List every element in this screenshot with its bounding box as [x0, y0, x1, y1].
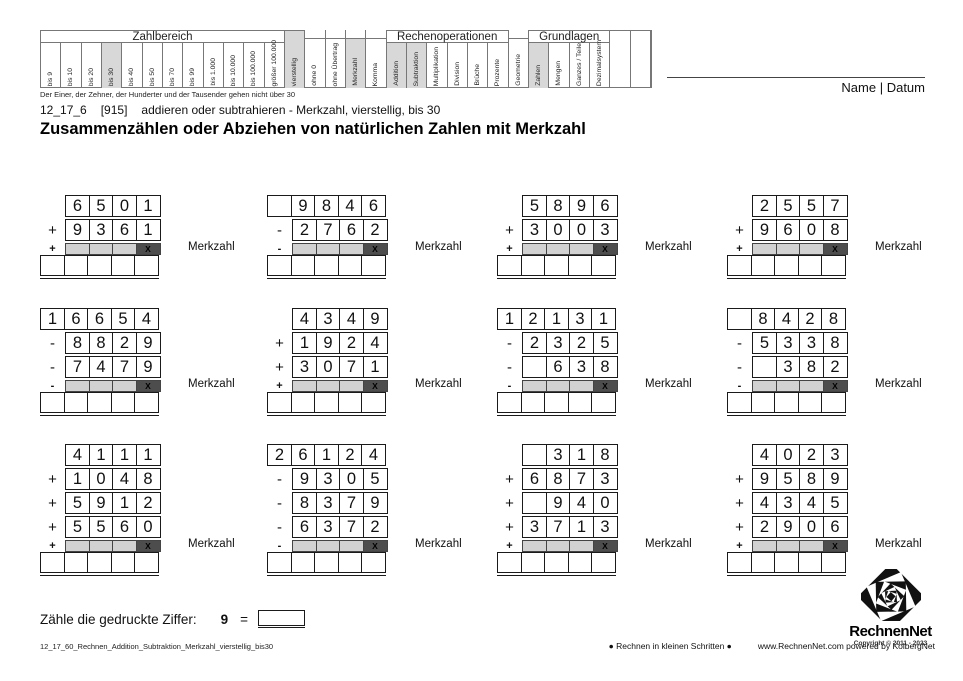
digit-cell: 5 — [65, 516, 90, 538]
digit-cell: 6 — [112, 516, 137, 538]
result-underline — [267, 575, 386, 576]
rechnennet-logo-icon — [861, 569, 921, 621]
digit-cell: 3 — [568, 308, 593, 330]
problems-grid: 6501+9361+XMerkzahl9846-2762-XMerkzahl58… — [0, 0, 963, 681]
operand-row: +9589 — [727, 468, 848, 490]
answer-row — [40, 392, 161, 413]
merkzahl-label: Merkzahl — [875, 538, 922, 550]
digit-cell: 6 — [292, 516, 317, 538]
operand-row: -382 — [727, 356, 848, 378]
merkzahl-operator-sign: - — [727, 380, 752, 392]
answer-cell[interactable] — [291, 255, 316, 276]
answer-cell[interactable] — [751, 255, 776, 276]
digit-cell: 3 — [593, 219, 618, 241]
answer-cell[interactable] — [497, 552, 522, 573]
count-answer-wrap — [258, 610, 305, 628]
operator-sign: + — [727, 516, 752, 538]
operator-sign: - — [267, 468, 292, 490]
operator-sign: + — [497, 492, 522, 514]
operand-row: 16654 — [40, 308, 161, 330]
merkzahl-x-cell: X — [136, 380, 161, 392]
merkzahl-cell[interactable] — [569, 540, 594, 552]
answer-cell[interactable] — [87, 552, 112, 573]
merkzahl-cell[interactable] — [112, 380, 137, 392]
merkzahl-operator-sign: + — [497, 243, 522, 255]
merkzahl-operator-sign: - — [267, 540, 292, 552]
digit-cell: 5 — [111, 308, 136, 330]
merkzahl-cell[interactable] — [569, 243, 594, 255]
digit-cell: 1 — [497, 308, 522, 330]
answer-cell[interactable] — [821, 255, 846, 276]
digit-cell: 4 — [752, 444, 777, 466]
operand-row: -638 — [497, 356, 618, 378]
digit-cell: 8 — [593, 444, 618, 466]
answer-cell[interactable] — [40, 255, 65, 276]
answer-cell[interactable] — [544, 255, 569, 276]
count-task-text: Zähle die gedruckte Ziffer: — [40, 612, 197, 627]
operand-row: -6372 — [267, 516, 388, 538]
digit-cell: 6 — [776, 219, 801, 241]
merkzahl-cell[interactable] — [776, 380, 801, 392]
digit-cell: 6 — [112, 219, 137, 241]
result-underline — [497, 575, 616, 576]
digit-cell: 9 — [363, 308, 388, 330]
digit-cell: 9 — [65, 219, 90, 241]
answer-cell[interactable] — [291, 392, 316, 413]
operand-row: 9846 — [267, 195, 388, 217]
answer-cell[interactable] — [111, 552, 136, 573]
answer-cell[interactable] — [751, 392, 776, 413]
digit-cell: 8 — [65, 332, 90, 354]
merkzahl-cell[interactable] — [546, 380, 571, 392]
answer-cell[interactable] — [291, 552, 316, 573]
merkzahl-cell[interactable] — [112, 243, 137, 255]
digit-cell: 2 — [363, 516, 388, 538]
answer-cell[interactable] — [134, 255, 159, 276]
empty-digit-cell — [267, 195, 292, 217]
merkzahl-x-label: X — [145, 244, 151, 254]
digit-cell: 1 — [363, 356, 388, 378]
empty-digit-cell — [522, 492, 547, 514]
merkzahl-cell[interactable] — [522, 380, 547, 392]
merkzahl-cell[interactable] — [292, 540, 317, 552]
operator-sign — [727, 195, 752, 217]
answer-cell[interactable] — [798, 255, 823, 276]
merkzahl-label: Merkzahl — [875, 378, 922, 390]
answer-cell[interactable] — [338, 552, 363, 573]
digit-cell: 5 — [799, 195, 824, 217]
digit-cell: 1 — [112, 492, 137, 514]
digit-cell: 7 — [316, 219, 341, 241]
merkzahl-x-cell: X — [363, 380, 388, 392]
digit-cell: 3 — [776, 356, 801, 378]
merkzahl-cell[interactable] — [752, 380, 777, 392]
merkzahl-x-cell: X — [823, 540, 848, 552]
result-underline — [267, 415, 386, 416]
answer-cell[interactable] — [798, 392, 823, 413]
merkzahl-label: Merkzahl — [875, 241, 922, 253]
empty-digit-cell — [727, 308, 752, 330]
operand-row: +940 — [497, 492, 618, 514]
digit-cell: 5 — [593, 332, 618, 354]
digit-cell: 9 — [752, 468, 777, 490]
problem-block: 2557+9608+XMerkzahl — [727, 195, 848, 279]
answer-cell[interactable] — [134, 552, 159, 573]
digit-cell: 9 — [89, 492, 114, 514]
merkzahl-cell[interactable] — [316, 243, 341, 255]
result-underline — [40, 278, 159, 279]
merkzahl-cell[interactable] — [65, 380, 90, 392]
answer-cell[interactable] — [267, 552, 292, 573]
answer-cell[interactable] — [87, 255, 112, 276]
problem-block: 318+6873+940+3713+XMerkzahl — [497, 444, 618, 576]
result-underline — [727, 278, 846, 279]
merkzahl-cell[interactable] — [799, 380, 824, 392]
answer-cell[interactable] — [338, 392, 363, 413]
merkzahl-cell[interactable] — [112, 540, 137, 552]
digit-cell: 8 — [799, 356, 824, 378]
digit-cell: 0 — [593, 492, 618, 514]
answer-cell[interactable] — [361, 392, 386, 413]
merkzahl-label: Merkzahl — [415, 538, 462, 550]
empty-digit-cell — [522, 356, 547, 378]
digit-cell: 0 — [339, 468, 364, 490]
merkzahl-x-label: X — [832, 381, 838, 391]
digit-cell: 6 — [823, 516, 848, 538]
answer-row — [267, 392, 388, 413]
merkzahl-cell[interactable] — [89, 540, 114, 552]
digit-cell: 8 — [821, 308, 846, 330]
answer-row — [727, 255, 848, 276]
merkzahl-cell[interactable] — [339, 380, 364, 392]
answer-cell[interactable] — [798, 552, 823, 573]
digit-cell: 8 — [751, 308, 776, 330]
merkzahl-cell[interactable] — [546, 243, 571, 255]
answer-cell[interactable] — [40, 552, 65, 573]
count-task-digit: 9 — [221, 612, 229, 627]
answer-cell[interactable] — [314, 255, 339, 276]
digit-cell: 4 — [363, 332, 388, 354]
answer-cell[interactable] — [338, 255, 363, 276]
digit-cell: 6 — [291, 444, 316, 466]
operator-sign: - — [267, 219, 292, 241]
digit-cell: 7 — [112, 356, 137, 378]
answer-cell[interactable] — [727, 552, 752, 573]
digit-cell: 4 — [752, 492, 777, 514]
digit-cell: 6 — [593, 195, 618, 217]
answer-row — [40, 552, 161, 573]
problem-block: 16654-8829-7479-XMerkzahl — [40, 308, 161, 416]
merkzahl-operator-sign: - — [497, 380, 522, 392]
operand-row: +6873 — [497, 468, 618, 490]
answer-cell[interactable] — [497, 392, 522, 413]
digit-cell: 3 — [522, 219, 547, 241]
operand-row: 2557 — [727, 195, 848, 217]
merkzahl-cell[interactable] — [522, 540, 547, 552]
digit-cell: 6 — [87, 308, 112, 330]
digit-cell: 1 — [136, 219, 161, 241]
answer-row — [727, 552, 848, 573]
answer-cell[interactable] — [751, 552, 776, 573]
answer-cell[interactable] — [87, 392, 112, 413]
answer-cell[interactable] — [774, 552, 799, 573]
operator-sign: + — [267, 356, 292, 378]
merkzahl-cell[interactable] — [752, 540, 777, 552]
merkzahl-operator-sign: + — [727, 243, 752, 255]
digit-cell: 7 — [823, 195, 848, 217]
merkzahl-cell[interactable] — [292, 380, 317, 392]
merkzahl-operator-sign: + — [40, 243, 65, 255]
digit-cell: 2 — [338, 444, 363, 466]
merkzahl-cell[interactable] — [339, 243, 364, 255]
result-underline — [727, 575, 846, 576]
operator-sign: - — [727, 356, 752, 378]
digit-cell: 3 — [593, 468, 618, 490]
digit-cell: 7 — [65, 356, 90, 378]
merkzahl-row: -X — [267, 540, 388, 552]
digit-cell: 3 — [546, 332, 571, 354]
problem-block: 4349+1924+3071+XMerkzahl — [267, 308, 388, 416]
digit-cell: 5 — [89, 195, 114, 217]
operand-row: -2325 — [497, 332, 618, 354]
operator-sign: + — [727, 468, 752, 490]
merkzahl-x-label: X — [145, 541, 151, 551]
answer-cell[interactable] — [111, 392, 136, 413]
answer-cell[interactable] — [544, 392, 569, 413]
digit-cell: 0 — [799, 516, 824, 538]
digit-cell: 9 — [752, 219, 777, 241]
merkzahl-x-cell: X — [363, 540, 388, 552]
merkzahl-operator-sign: - — [267, 243, 292, 255]
merkzahl-row: +X — [497, 540, 618, 552]
digit-cell: 9 — [291, 195, 316, 217]
merkzahl-x-cell: X — [593, 540, 618, 552]
digit-cell: 3 — [799, 332, 824, 354]
operand-row: 318 — [497, 444, 618, 466]
merkzahl-cell[interactable] — [339, 540, 364, 552]
digit-cell: 0 — [136, 516, 161, 538]
problem-block: 5896+3003+XMerkzahl — [497, 195, 618, 279]
merkzahl-row: -X — [40, 380, 161, 392]
problem-block: 26124-9305-8379-6372-XMerkzahl — [267, 444, 388, 576]
answer-cell[interactable] — [521, 552, 546, 573]
operand-row: +1048 — [40, 468, 161, 490]
merkzahl-cell[interactable] — [316, 380, 341, 392]
merkzahl-cell[interactable] — [776, 243, 801, 255]
merkzahl-label: Merkzahl — [188, 538, 235, 550]
digit-cell: 4 — [338, 195, 363, 217]
merkzahl-cell[interactable] — [752, 243, 777, 255]
merkzahl-x-cell: X — [136, 540, 161, 552]
digit-cell: 4 — [339, 308, 364, 330]
answer-cell[interactable] — [134, 392, 159, 413]
operator-sign: + — [727, 219, 752, 241]
answer-cell[interactable] — [64, 392, 89, 413]
answer-cell[interactable] — [267, 255, 292, 276]
answer-cell[interactable] — [267, 392, 292, 413]
operand-row: +3003 — [497, 219, 618, 241]
answer-cell[interactable] — [727, 255, 752, 276]
digit-cell: 2 — [752, 195, 777, 217]
digit-cell: 2 — [752, 516, 777, 538]
operand-row: +3071 — [267, 356, 388, 378]
digit-cell: 0 — [89, 468, 114, 490]
answer-cell[interactable] — [314, 392, 339, 413]
merkzahl-row: -X — [267, 243, 388, 255]
answer-cell[interactable] — [521, 255, 546, 276]
operator-sign — [40, 195, 65, 217]
operator-sign: - — [40, 332, 65, 354]
operator-sign — [267, 308, 292, 330]
digit-cell: 3 — [569, 356, 594, 378]
logo-copyright: Copyright © 2011 - 2023 — [843, 640, 938, 647]
operand-row: -9305 — [267, 468, 388, 490]
digit-cell: 1 — [292, 332, 317, 354]
digit-cell: 2 — [136, 492, 161, 514]
digit-cell: 1 — [65, 468, 90, 490]
merkzahl-cell[interactable] — [799, 243, 824, 255]
merkzahl-cell[interactable] — [316, 540, 341, 552]
digit-cell: 7 — [339, 516, 364, 538]
digit-cell: 5 — [823, 492, 848, 514]
digit-cell: 3 — [316, 468, 341, 490]
digit-cell: 0 — [112, 195, 137, 217]
digit-cell: 9 — [823, 468, 848, 490]
digit-cell: 8 — [314, 195, 339, 217]
merkzahl-x-label: X — [832, 541, 838, 551]
digit-cell: 3 — [89, 219, 114, 241]
digit-cell: 8 — [799, 468, 824, 490]
digit-cell: 5 — [89, 516, 114, 538]
operand-row: 4111 — [40, 444, 161, 466]
result-underline — [727, 415, 846, 416]
digit-cell: 6 — [64, 308, 89, 330]
operator-sign: + — [40, 492, 65, 514]
answer-cell[interactable] — [64, 552, 89, 573]
operator-sign — [497, 195, 522, 217]
digit-cell: 1 — [314, 444, 339, 466]
operand-row: 4349 — [267, 308, 388, 330]
answer-cell[interactable] — [64, 255, 89, 276]
digit-cell: 8 — [823, 219, 848, 241]
digit-cell: 2 — [521, 308, 546, 330]
digit-cell: 2 — [339, 332, 364, 354]
answer-cell[interactable] — [774, 255, 799, 276]
digit-cell: 2 — [363, 219, 388, 241]
merkzahl-cell[interactable] — [292, 243, 317, 255]
digit-cell: 8 — [546, 468, 571, 490]
answer-cell[interactable] — [568, 255, 593, 276]
operand-row: -8829 — [40, 332, 161, 354]
answer-cell[interactable] — [568, 552, 593, 573]
digit-cell: 3 — [776, 332, 801, 354]
merkzahl-cell[interactable] — [546, 540, 571, 552]
answer-cell[interactable] — [111, 255, 136, 276]
merkzahl-cell[interactable] — [65, 243, 90, 255]
digit-cell: 2 — [799, 444, 824, 466]
digit-cell: 6 — [339, 219, 364, 241]
operator-sign: + — [40, 468, 65, 490]
digit-cell: 8 — [89, 332, 114, 354]
digit-cell: 9 — [776, 516, 801, 538]
answer-cell[interactable] — [727, 392, 752, 413]
merkzahl-cell[interactable] — [65, 540, 90, 552]
digit-cell: 6 — [361, 195, 386, 217]
digit-cell: 9 — [569, 195, 594, 217]
digit-cell: 9 — [546, 492, 571, 514]
digit-cell: 9 — [136, 332, 161, 354]
merkzahl-row: +X — [40, 243, 161, 255]
merkzahl-cell[interactable] — [89, 380, 114, 392]
operand-row: +4345 — [727, 492, 848, 514]
merkzahl-cell[interactable] — [522, 243, 547, 255]
merkzahl-x-cell: X — [593, 243, 618, 255]
answer-cell[interactable] — [568, 392, 593, 413]
digit-cell: 1 — [40, 308, 65, 330]
digit-cell: 1 — [136, 195, 161, 217]
count-answer-underline — [258, 627, 305, 628]
merkzahl-cell[interactable] — [776, 540, 801, 552]
merkzahl-cell[interactable] — [569, 380, 594, 392]
digit-cell: 7 — [569, 468, 594, 490]
answer-cell[interactable] — [591, 392, 616, 413]
answer-cell[interactable] — [591, 552, 616, 573]
digit-cell: 4 — [89, 356, 114, 378]
merkzahl-label: Merkzahl — [645, 538, 692, 550]
answer-cell[interactable] — [821, 392, 846, 413]
answer-cell[interactable] — [544, 552, 569, 573]
merkzahl-x-label: X — [602, 244, 608, 254]
merkzahl-row: +X — [497, 243, 618, 255]
merkzahl-x-label: X — [602, 541, 608, 551]
merkzahl-row: +X — [40, 540, 161, 552]
problem-block: 8428-5338-382-XMerkzahl — [727, 308, 848, 416]
merkzahl-row: +X — [727, 540, 848, 552]
operand-row: 4023 — [727, 444, 848, 466]
answer-cell[interactable] — [774, 392, 799, 413]
answer-cell[interactable] — [361, 255, 386, 276]
count-task: Zähle die gedruckte Ziffer: 9 = — [40, 610, 305, 628]
footer-line: ● Rechnen in kleinen Schritten ● www.Rec… — [0, 641, 935, 651]
digit-cell: 3 — [522, 516, 547, 538]
answer-cell[interactable] — [40, 392, 65, 413]
digit-cell: 4 — [361, 444, 386, 466]
digit-cell: 9 — [363, 492, 388, 514]
answer-cell[interactable] — [497, 255, 522, 276]
operator-sign: - — [497, 356, 522, 378]
answer-cell[interactable] — [521, 392, 546, 413]
answer-cell[interactable] — [591, 255, 616, 276]
count-answer-box[interactable] — [258, 610, 305, 626]
merkzahl-label: Merkzahl — [188, 378, 235, 390]
result-underline — [267, 278, 386, 279]
digit-cell: 4 — [799, 492, 824, 514]
answer-row — [40, 255, 161, 276]
digit-cell: 0 — [799, 219, 824, 241]
merkzahl-label: Merkzahl — [415, 378, 462, 390]
operand-row: 6501 — [40, 195, 161, 217]
merkzahl-cell[interactable] — [799, 540, 824, 552]
answer-cell[interactable] — [314, 552, 339, 573]
digit-cell: 4 — [774, 308, 799, 330]
answer-cell[interactable] — [361, 552, 386, 573]
operator-sign: + — [40, 516, 65, 538]
empty-digit-cell — [522, 444, 547, 466]
merkzahl-cell[interactable] — [89, 243, 114, 255]
digit-cell: 3 — [593, 516, 618, 538]
merkzahl-operator-sign: + — [40, 540, 65, 552]
answer-row — [497, 255, 618, 276]
